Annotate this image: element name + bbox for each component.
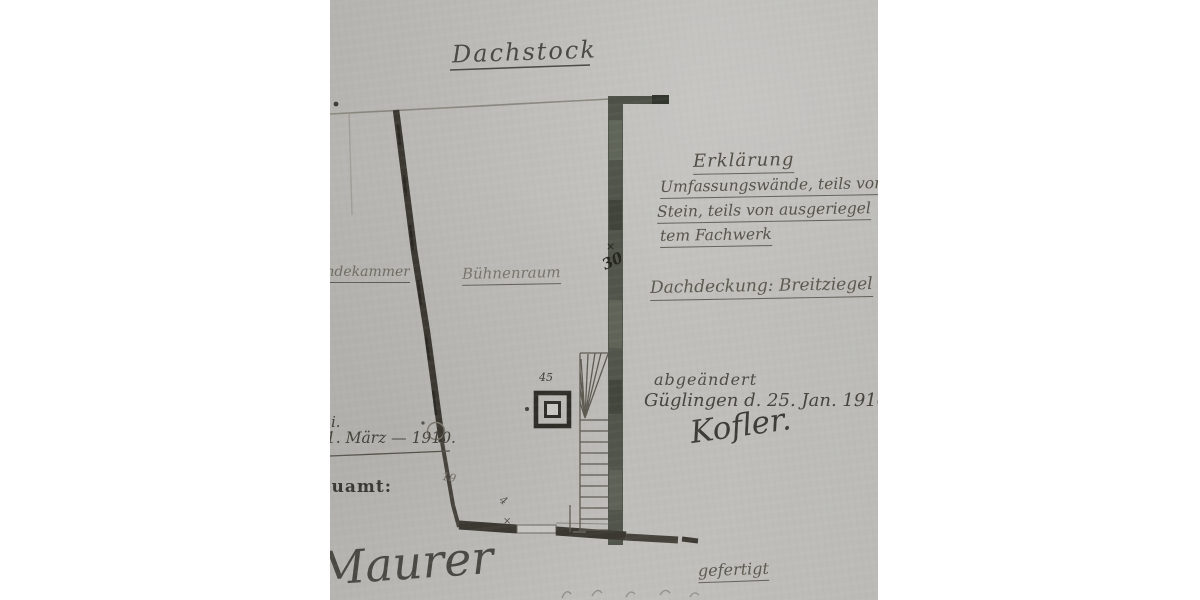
- adjacent-room-label: Gesindekammer: [330, 264, 410, 288]
- roofing-note: Dachdeckung: Breitziegel: [650, 274, 873, 301]
- margin-office-label: Ortsbauamt:: [330, 477, 392, 502]
- dim-tick-bottom: ×: [503, 516, 511, 527]
- bottom-wall-right: [626, 537, 678, 540]
- legend-heading: Erklärung: [693, 149, 795, 175]
- letterbox-right: [878, 0, 1200, 600]
- amendment-label: abgeändert: [654, 370, 757, 389]
- bottom-wall-inner-line: [556, 523, 608, 524]
- bottom-wall-mid: [556, 531, 626, 536]
- bottom-cutoff-writing: [562, 590, 699, 598]
- chimney: [525, 393, 569, 426]
- dim-chimney-45: 45: [539, 371, 553, 384]
- corner-dot: [334, 102, 339, 107]
- eave-line: [330, 99, 610, 114]
- plan-linework: [330, 0, 878, 600]
- margin-date: d. 1. März — 1910.: [330, 429, 456, 454]
- winder-steps: [580, 353, 608, 418]
- room-label-buehnenraum: Bühnenraum: [462, 263, 561, 286]
- bottom-wall-dash: [682, 539, 698, 541]
- bottom-wall-opening: [517, 525, 556, 533]
- right-wall-cap-end: [652, 95, 669, 104]
- footer-prepared: gefertigt: [698, 559, 770, 583]
- staircase: [570, 353, 608, 532]
- scanned-plan-page: Dachstock Erklärung Umfassungswände, tei…: [0, 0, 1200, 600]
- neighbor-wall-line: [349, 112, 352, 215]
- dim-tick-top: ×: [606, 240, 615, 253]
- legend-line-2: Stein, teils von ausgeriegel: [657, 199, 871, 224]
- legend-line-1: Umfassungswände, teils von: [660, 174, 878, 199]
- dim-19: 19: [441, 470, 457, 485]
- plan-scan: Dachstock Erklärung Umfassungswände, tei…: [330, 0, 878, 600]
- page-title: Dachstock: [452, 35, 598, 70]
- letterbox-left: [0, 0, 330, 600]
- legend-line-3: tem Fachwerk: [660, 225, 772, 248]
